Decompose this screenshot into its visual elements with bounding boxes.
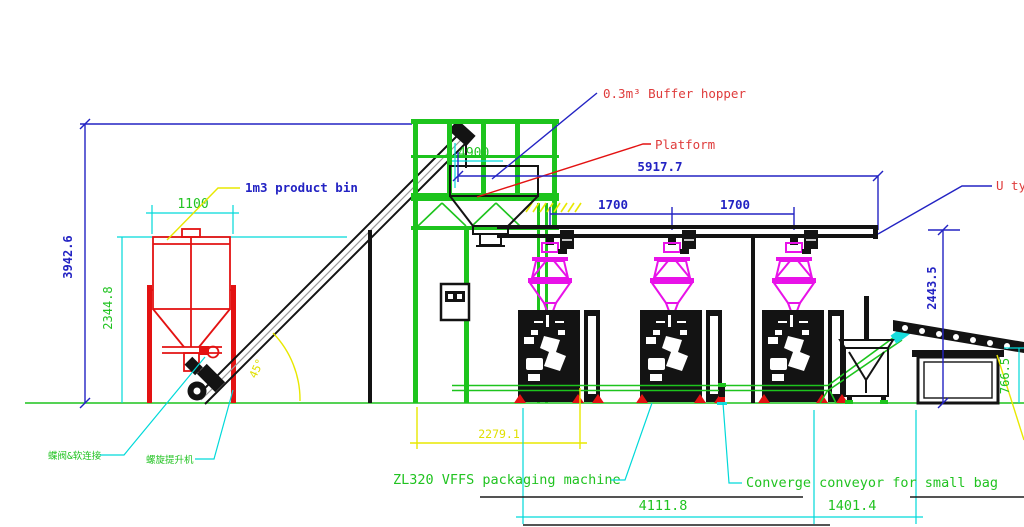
converge-label-text: Converge conveyor for small bag bbox=[746, 475, 998, 491]
platform-length-value: 5917.7 bbox=[637, 159, 682, 174]
vffs-label-text: ZL320 VFFS packaging machine bbox=[393, 472, 621, 488]
screw-elevator-label-text: 螺旋提升机 bbox=[146, 454, 194, 466]
u-type-label: U ty bbox=[878, 178, 1024, 234]
conveyor-stand bbox=[912, 350, 1004, 403]
station-pitch-a-value: 1700 bbox=[598, 197, 628, 212]
cad-drawing-canvas: 3942.6 2344.8 1100 1m3 bbox=[0, 0, 1024, 527]
product-bin-label-text: 1m3 product bin bbox=[245, 180, 358, 195]
u-type-label-text: U ty bbox=[996, 178, 1024, 193]
screw-angle-annotation: 45° bbox=[247, 333, 300, 401]
bin-width-value: 1100 bbox=[177, 197, 208, 212]
outfeed-length-value: 1401.4 bbox=[828, 498, 877, 514]
cropped-bottom-lines bbox=[480, 497, 1024, 525]
product-bin bbox=[147, 229, 236, 403]
butterfly-valve-label-text: 蝶阀&软连接 bbox=[48, 450, 102, 462]
vffs-station bbox=[514, 230, 604, 403]
screw-support-leg bbox=[368, 230, 372, 403]
infeed-value: 2279.1 bbox=[478, 427, 520, 441]
collection-hopper bbox=[840, 296, 893, 404]
buffer-hopper-label-text: 0.3m³ Buffer hopper bbox=[603, 86, 746, 101]
discharge-chute bbox=[864, 296, 869, 340]
line-length-value: 4111.8 bbox=[639, 498, 688, 514]
platform-leg bbox=[413, 230, 418, 403]
weigher-feeder bbox=[558, 230, 574, 254]
screw-elevator-label: 螺旋提升机 bbox=[146, 390, 233, 466]
control-panel bbox=[441, 284, 469, 320]
stand-height-value: 766.5 bbox=[998, 358, 1012, 394]
bin-height-value: 2344.8 bbox=[101, 286, 115, 329]
platform-height-value: 4900 bbox=[458, 146, 489, 161]
product-bin-label: 1m3 product bin bbox=[167, 180, 358, 240]
converge-label: Converge conveyor for small bag bbox=[723, 403, 998, 491]
station-pitch-b-value: 1700 bbox=[720, 197, 750, 212]
overall-height-value: 3942.6 bbox=[61, 235, 75, 278]
beam-support-column bbox=[751, 238, 755, 403]
line-length-dimensions: 4111.8 1401.4 bbox=[516, 408, 923, 524]
vffs-machine-body bbox=[514, 310, 604, 403]
butterfly-valve-label: 蝶阀&软连接 bbox=[48, 357, 205, 462]
bin-height-dimension: 2344.8 bbox=[101, 237, 347, 403]
discharge-height-value: 2443.5 bbox=[925, 266, 939, 309]
screw-elevator bbox=[185, 120, 476, 404]
vffs-station-3 bbox=[758, 230, 848, 403]
platform-label-text: Platform bbox=[655, 137, 715, 152]
vffs-station-2 bbox=[636, 230, 726, 403]
